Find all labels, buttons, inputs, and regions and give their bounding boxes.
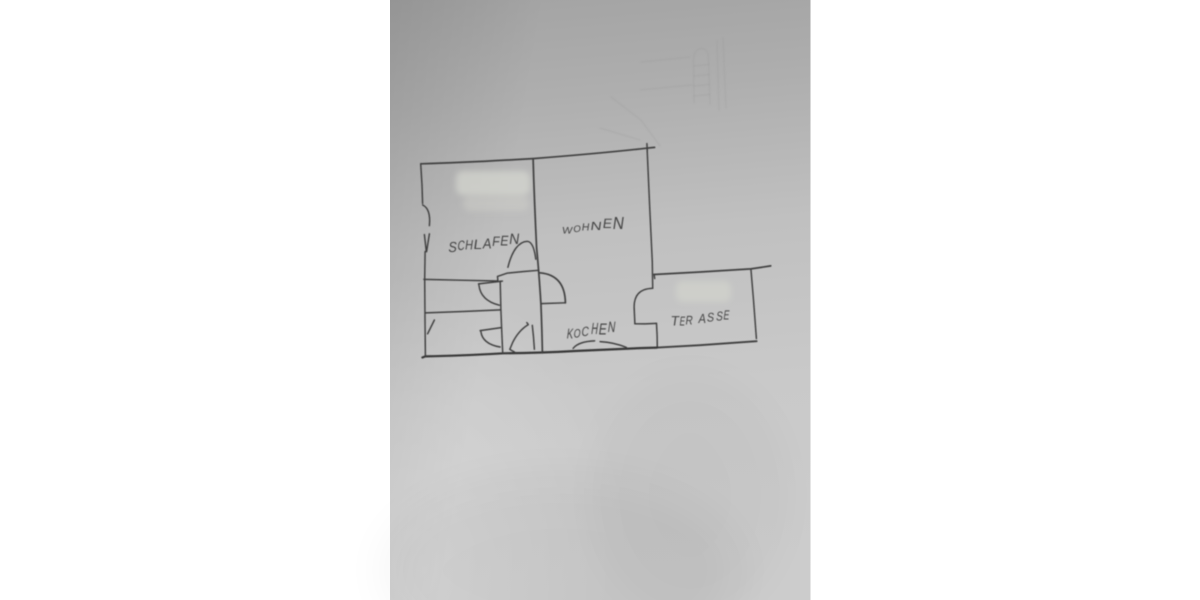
svg-text:N: N — [590, 219, 603, 233]
svg-text:W: W — [561, 225, 573, 236]
